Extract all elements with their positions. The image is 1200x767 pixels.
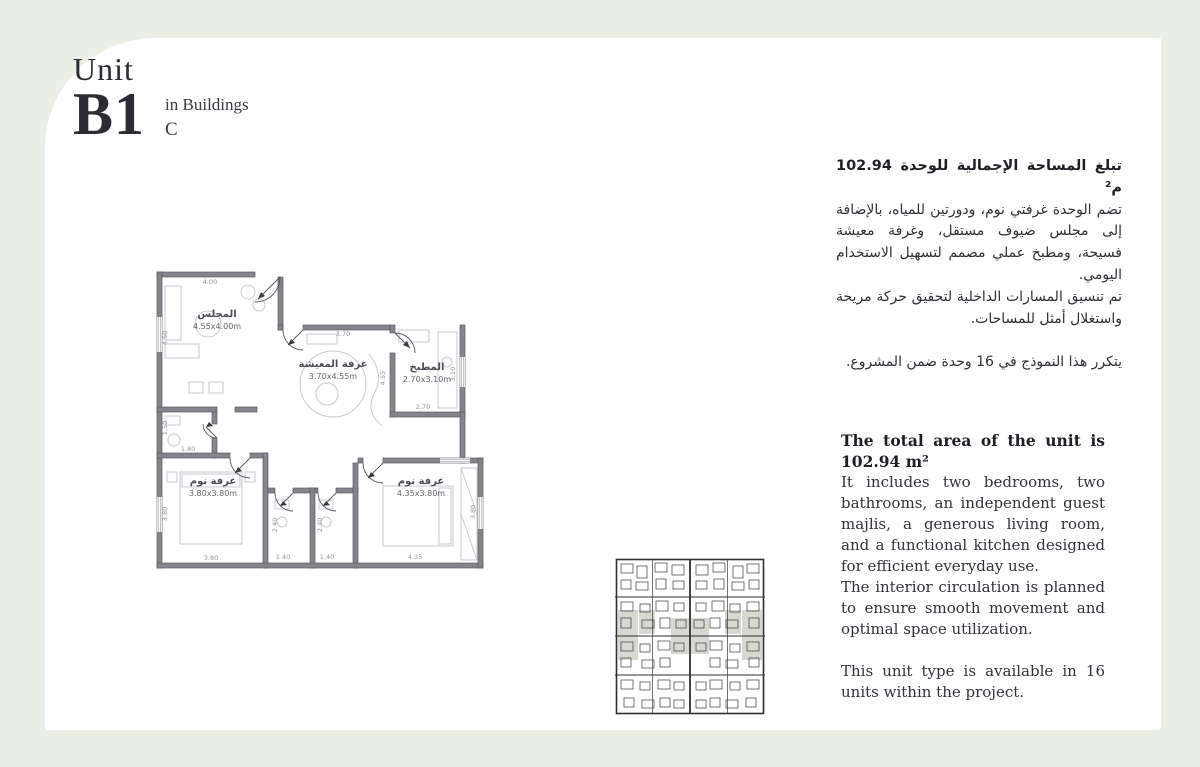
unit-code: B1 bbox=[73, 89, 145, 140]
dim-bedroom2-width: 4.35 bbox=[408, 553, 422, 561]
room-kitchen-label: المطبخ bbox=[410, 362, 445, 373]
arabic-unit-description: تضم الوحدة غرفتي نوم، ودورتين للمياه، با… bbox=[836, 200, 1122, 287]
dim-bath2-width: 1.40 bbox=[320, 553, 334, 561]
dim-bath1-height: 2.40 bbox=[271, 518, 279, 532]
dim-bath2-height: 2.40 bbox=[316, 518, 324, 532]
room-labels: المجلس 4.55x4.00m غرفة المعيشة 3.70x4.55… bbox=[189, 309, 451, 498]
english-area-line: The total area of the unit is 102.94 m² bbox=[841, 430, 1105, 472]
english-description: The total area of the unit is 102.94 m² … bbox=[841, 430, 1105, 703]
dim-majlis-width: 4.00 bbox=[203, 278, 217, 286]
room-bedroom2-label: غرفة نوم bbox=[398, 476, 445, 487]
dim-bedroom1-height: 3.80 bbox=[161, 507, 169, 521]
arabic-circulation-note: تم تنسيق المسارات الداخلية لتحقيق حركة م… bbox=[836, 287, 1122, 331]
arabic-description: تبلغ المساحة الإجمالية للوحدة 102.94 م² … bbox=[836, 156, 1122, 374]
dim-bedroom1-width: 3.80 bbox=[204, 554, 218, 562]
room-kitchen-size: 2.70x3.10m bbox=[403, 375, 451, 384]
title-block: Unit B1 in Buildings C bbox=[73, 52, 249, 141]
english-availability-note: This unit type is available in 16 units … bbox=[841, 661, 1105, 703]
arabic-area-line: تبلغ المساحة الإجمالية للوحدة 102.94 م² bbox=[836, 156, 1122, 200]
building-site-plan bbox=[615, 558, 765, 715]
room-living-size: 3.70x4.55m bbox=[309, 372, 357, 381]
dim-bedroom2-height: 3.80 bbox=[469, 505, 477, 519]
english-unit-description: It includes two bedrooms, two bathrooms,… bbox=[841, 472, 1105, 577]
dim-hallbath-height: 1.50 bbox=[161, 421, 169, 435]
room-majlis-label: المجلس bbox=[197, 309, 236, 320]
dim-bath1-width: 1.40 bbox=[276, 553, 290, 561]
dim-hallbath-width: 1.80 bbox=[181, 445, 195, 453]
room-living-label: غرفة المعيشة bbox=[299, 359, 368, 370]
unit-floor-plan: المجلس 4.55x4.00m غرفة المعيشة 3.70x4.55… bbox=[155, 262, 500, 578]
building-letter: C bbox=[165, 119, 249, 141]
brochure-page: { "page":{"background":"#ebeee4","card_b… bbox=[0, 0, 1200, 767]
content-card: Unit B1 in Buildings C bbox=[45, 38, 1161, 730]
dimension-labels: 4.00 4.50 3.70 4.55 3.10 2.70 1.50 1.80 … bbox=[161, 278, 477, 562]
english-circulation-note: The interior circulation is planned to e… bbox=[841, 577, 1105, 640]
room-bedroom1-label: غرفة نوم bbox=[190, 476, 237, 487]
room-bedroom2-size: 4.35x3.80m bbox=[397, 489, 445, 498]
room-bedroom1-size: 3.80x3.80m bbox=[189, 489, 237, 498]
room-majlis-size: 4.55x4.00m bbox=[193, 322, 241, 331]
dim-living-height: 4.55 bbox=[379, 371, 387, 385]
dim-kitchen-width: 2.70 bbox=[416, 403, 430, 411]
in-buildings-label: in Buildings bbox=[165, 95, 249, 115]
arabic-availability-note: يتكرر هذا النموذج في 16 وحدة ضمن المشروع… bbox=[836, 352, 1122, 374]
dim-kitchen-height: 3.10 bbox=[449, 367, 457, 381]
building-block: in Buildings C bbox=[165, 95, 249, 140]
dim-majlis-height: 4.50 bbox=[161, 331, 169, 345]
dim-living-width: 3.70 bbox=[336, 330, 350, 338]
